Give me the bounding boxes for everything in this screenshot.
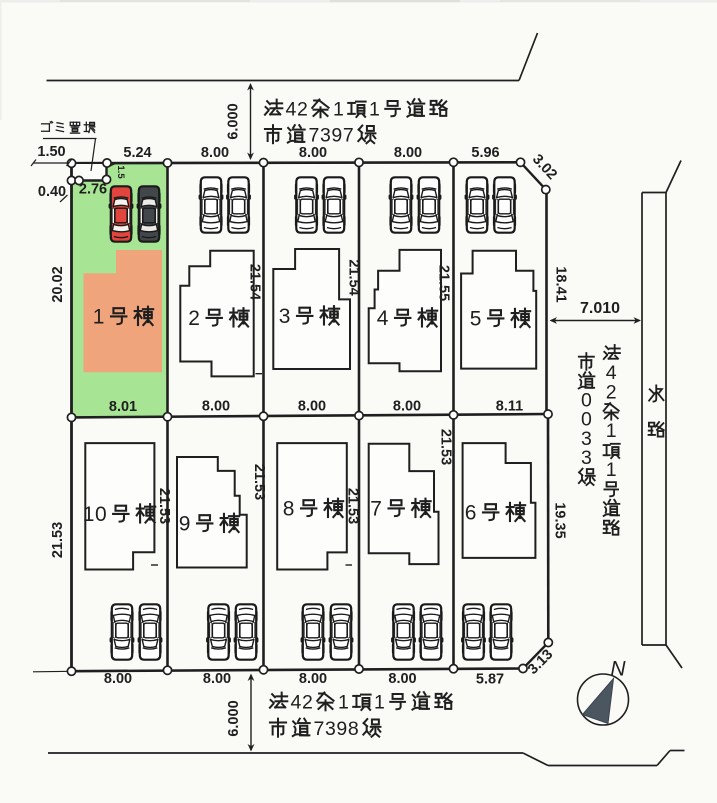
svg-text:5.24: 5.24: [123, 145, 151, 161]
svg-text:7: 7: [370, 498, 382, 521]
svg-text:8.00: 8.00: [202, 399, 230, 415]
svg-text:9: 9: [179, 513, 191, 536]
svg-text:3.02: 3.02: [529, 151, 560, 183]
svg-text:21.53: 21.53: [50, 522, 66, 558]
svg-text:2: 2: [188, 307, 200, 330]
svg-text:8.00: 8.00: [299, 145, 327, 161]
svg-text:6.000: 6.000: [226, 700, 242, 736]
svg-text:3: 3: [581, 447, 592, 469]
svg-text:1: 1: [606, 420, 617, 442]
svg-text:7397: 7397: [309, 125, 355, 147]
svg-text:8.00: 8.00: [201, 145, 229, 161]
svg-text:7398: 7398: [314, 718, 360, 740]
svg-text:8.00: 8.00: [393, 399, 421, 415]
svg-text:18.41: 18.41: [553, 266, 569, 302]
svg-text:21.55: 21.55: [436, 265, 452, 301]
svg-text:21.53: 21.53: [251, 464, 267, 500]
svg-text:8.00: 8.00: [299, 671, 327, 687]
svg-text:21.54: 21.54: [346, 259, 362, 295]
svg-text:6.000: 6.000: [226, 103, 242, 139]
svg-text:1: 1: [333, 99, 344, 121]
svg-text:4: 4: [377, 307, 389, 330]
svg-text:20.02: 20.02: [50, 266, 66, 302]
svg-text:1: 1: [374, 692, 385, 714]
svg-text:10: 10: [83, 503, 108, 526]
svg-text:0.40: 0.40: [38, 184, 66, 200]
svg-text:21.54: 21.54: [247, 264, 263, 300]
svg-text:3.13: 3.13: [525, 647, 556, 678]
svg-text:42: 42: [286, 99, 309, 121]
svg-text:42: 42: [291, 692, 314, 714]
svg-text:7.010: 7.010: [580, 300, 620, 317]
svg-text:N: N: [610, 658, 626, 681]
svg-text:3: 3: [279, 305, 291, 328]
svg-text:8.00: 8.00: [394, 145, 422, 161]
svg-text:1.5: 1.5: [115, 165, 126, 179]
svg-text:5.87: 5.87: [476, 672, 504, 688]
svg-text:8.01: 8.01: [109, 399, 137, 415]
svg-text:6: 6: [465, 502, 477, 525]
svg-text:5.96: 5.96: [471, 145, 499, 161]
svg-text:8.11: 8.11: [496, 399, 523, 415]
svg-text:8: 8: [283, 498, 295, 521]
svg-text:1: 1: [369, 99, 380, 121]
svg-text:21.53: 21.53: [345, 488, 361, 524]
svg-text:2: 2: [606, 381, 617, 403]
svg-text:2.76: 2.76: [79, 182, 107, 198]
svg-text:5: 5: [470, 308, 482, 331]
svg-text:1: 1: [606, 459, 617, 481]
svg-text:1: 1: [338, 692, 349, 714]
svg-text:1.50: 1.50: [37, 144, 65, 160]
svg-text:21.53: 21.53: [438, 429, 454, 465]
svg-text:19.35: 19.35: [552, 502, 568, 538]
svg-text:8.00: 8.00: [104, 671, 132, 687]
svg-text:1: 1: [93, 306, 105, 329]
svg-text:8.00: 8.00: [203, 671, 231, 687]
svg-text:8.00: 8.00: [298, 399, 326, 415]
svg-text:21.53: 21.53: [156, 488, 172, 524]
svg-text:8.00: 8.00: [388, 671, 416, 687]
